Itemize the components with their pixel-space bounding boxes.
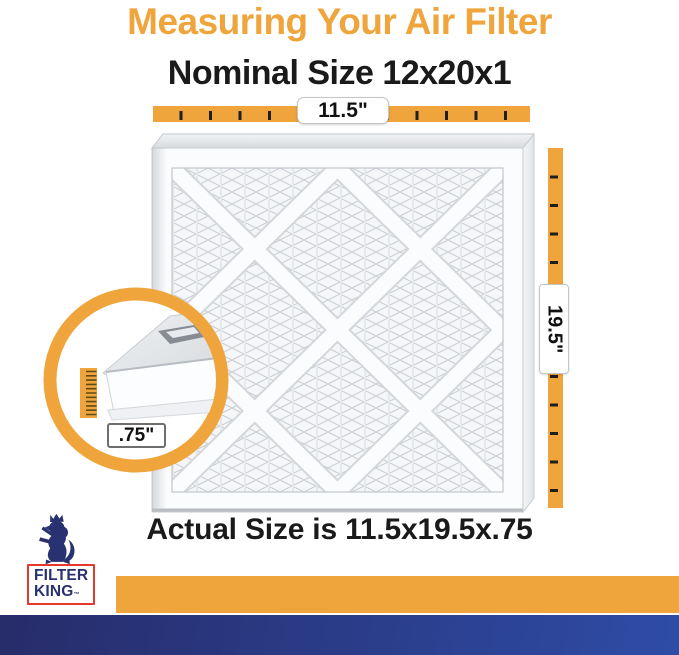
bottom-orange-bar	[116, 576, 679, 613]
filter-king-logo: FILTER KING™	[20, 512, 110, 612]
logo-line2: KING™	[34, 584, 93, 603]
lion-mascot-icon	[26, 512, 82, 566]
filter-box	[152, 134, 534, 512]
logo-wordmark: FILTER KING™	[27, 564, 95, 605]
depth-measurement-label: .75"	[107, 423, 166, 448]
bottom-navy-bar	[0, 615, 679, 655]
filter-top-face	[152, 134, 534, 148]
air-filter-infographic: Measuring Your Air Filter Nominal Size 1…	[0, 0, 679, 655]
height-measurement-label: 19.5"	[539, 284, 569, 374]
support-lattice	[172, 168, 503, 492]
width-measurement-label: 11.5"	[297, 97, 389, 124]
filter-right-face	[523, 134, 534, 512]
logo-line1: FILTER	[34, 568, 93, 584]
inset-mini-ruler	[80, 368, 97, 418]
trademark-symbol: ™	[74, 592, 80, 598]
